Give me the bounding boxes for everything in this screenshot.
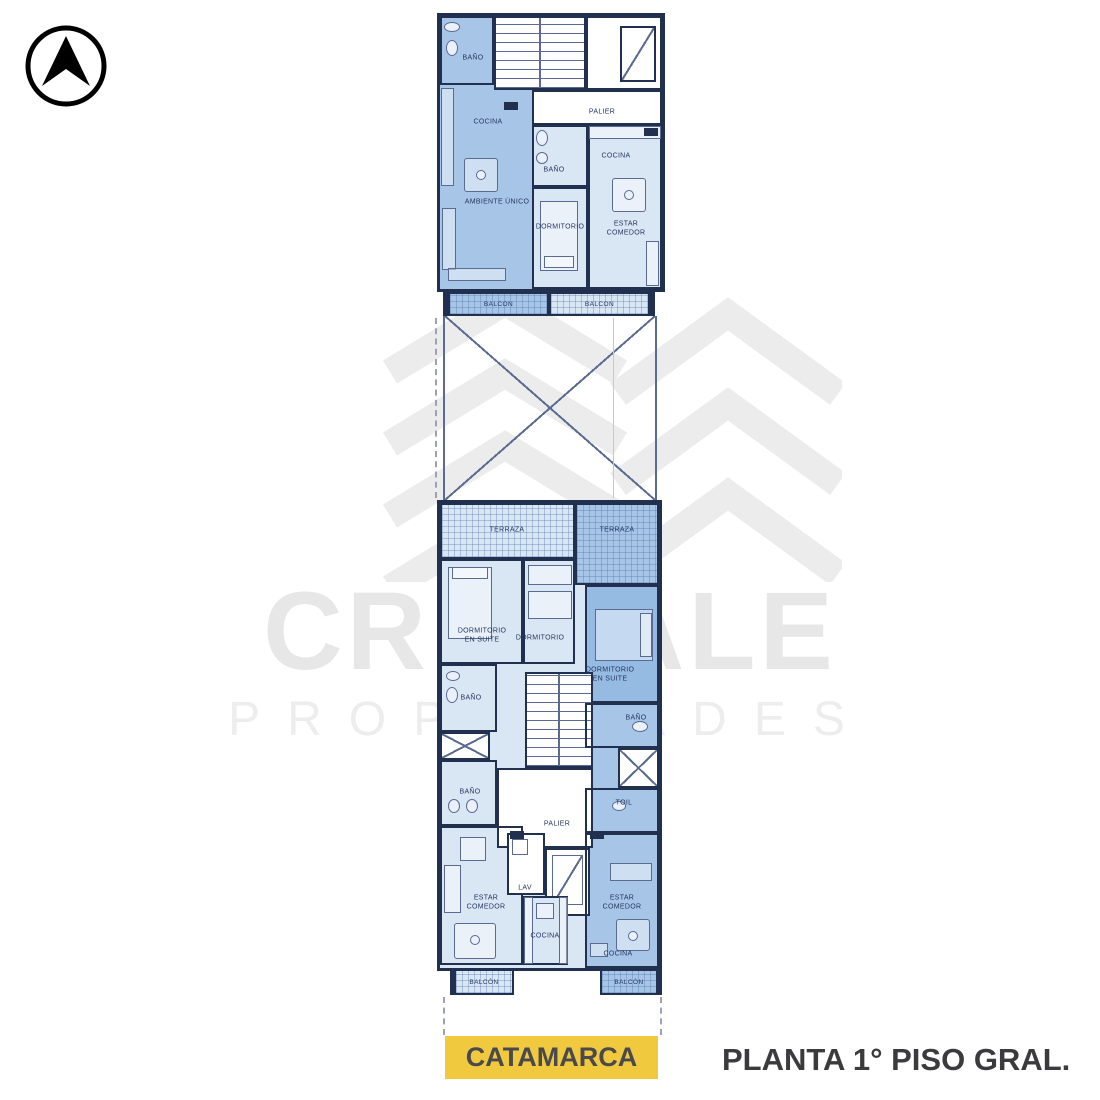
room-label-dormitorio: DORMITORIO	[516, 635, 564, 644]
stairwell	[525, 672, 593, 768]
balcony: BALCON	[549, 292, 655, 316]
room-label-banio: BAÑO	[462, 55, 483, 64]
room-label-terraza: TERRAZA	[490, 527, 525, 536]
room-label-cocina: COCINA	[473, 119, 502, 128]
air-shaft	[440, 732, 490, 760]
door-tag	[590, 831, 604, 839]
bed-furniture	[528, 591, 572, 619]
air-shaft	[618, 748, 659, 788]
room-label-cocina: COCINA	[601, 153, 630, 162]
room-label-balcon: BALCON	[585, 301, 614, 308]
room-label-dormitorio-suite: DORMITORIO EN SUITE	[452, 627, 512, 645]
floor-plan-sheet: CRISTALE PROPIEDADES BAÑO	[0, 0, 1100, 1100]
plan-title: PLANTA 1° PISO GRAL.	[722, 1042, 1072, 1078]
toilet-fixture	[536, 130, 548, 146]
courtyard-line	[613, 318, 614, 498]
door-tag	[644, 128, 658, 136]
balcony: BALCON	[443, 292, 549, 316]
room-label-ambiente-unico: AMBIENTE ÚNICO	[465, 199, 529, 208]
laundry-sink	[512, 839, 528, 855]
room-label-balcon: BALCON	[484, 301, 513, 308]
toilet-fixture	[446, 687, 458, 703]
table-center	[470, 935, 480, 945]
room-label-banio: BAÑO	[543, 167, 564, 176]
table-center	[624, 190, 634, 200]
bed-furniture	[528, 565, 572, 585]
room-label-dormitorio: DORMITORIO	[536, 224, 584, 233]
sofa-furniture	[610, 863, 652, 881]
sofa-furniture	[448, 268, 506, 281]
kitchen-counter	[559, 897, 568, 964]
room-label-estar-comedor: ESTAR COMEDOR	[596, 220, 656, 238]
room-label-balcon: BALCÓN	[614, 979, 643, 986]
sofa-furniture	[646, 241, 659, 286]
bidet-fixture	[536, 152, 548, 164]
door-tag	[504, 102, 518, 110]
dashed-projection-line	[443, 997, 445, 1035]
room-label-cocina: COCINA	[603, 951, 632, 960]
dashed-projection-line	[660, 997, 662, 1035]
room-label-lavadero: LAV	[518, 885, 532, 894]
balcony: BALCÓN	[450, 969, 514, 995]
table-center	[476, 170, 486, 180]
sofa-furniture	[442, 208, 456, 270]
toilet-fixture	[446, 40, 458, 56]
room-label-banio: BAÑO	[625, 715, 646, 724]
terraza	[575, 503, 659, 585]
toilet-fixture	[448, 799, 460, 813]
room-label-estar-comedor: ESTAR COMEDOR	[592, 894, 652, 912]
room-label-banio: BAÑO	[460, 695, 481, 704]
room-label-toilette: TOIL	[616, 800, 633, 809]
kitchen-counter	[441, 88, 454, 186]
room-label-estar-comedor: ESTAR COMEDOR	[456, 894, 516, 912]
sink-fixture	[444, 22, 460, 32]
elevator	[620, 26, 656, 82]
bed-pillow	[544, 256, 574, 268]
room-label-cocina: COCINA	[530, 933, 559, 942]
upper-floor-plan: BAÑO COCINA AMBIENTE ÚNICO PALIER COCINA…	[437, 13, 665, 292]
bed-pillow	[640, 613, 652, 657]
sink-fixture	[446, 671, 460, 681]
room-label-dormitorio-suite: DORMITORIO EN SUITE	[580, 666, 640, 684]
room-palier	[532, 90, 662, 125]
bed-pillow	[452, 567, 488, 579]
door-tag	[510, 831, 524, 839]
street-name-badge: CATAMARCA	[445, 1036, 658, 1079]
dashed-property-line	[435, 318, 437, 498]
room-label-banio: BAÑO	[459, 789, 480, 798]
stairwell	[494, 16, 586, 90]
kitchen-counter	[524, 897, 533, 964]
armchair-furniture	[460, 837, 486, 861]
room-label-palier: PALIER	[589, 109, 615, 118]
balcony: BALCÓN	[600, 969, 662, 995]
lower-floor-plan: TERRAZA TERRAZA DORMITORIO EN SUITE DORM…	[437, 500, 662, 971]
room-label-balcon: BALCÓN	[469, 979, 498, 986]
bidet-fixture	[466, 799, 478, 813]
table-center	[628, 931, 638, 941]
stove-burners	[536, 903, 554, 919]
room-label-terraza: TERRAZA	[600, 527, 635, 536]
room-label-palier: PALIER	[544, 821, 570, 830]
courtyard-void	[443, 316, 657, 500]
